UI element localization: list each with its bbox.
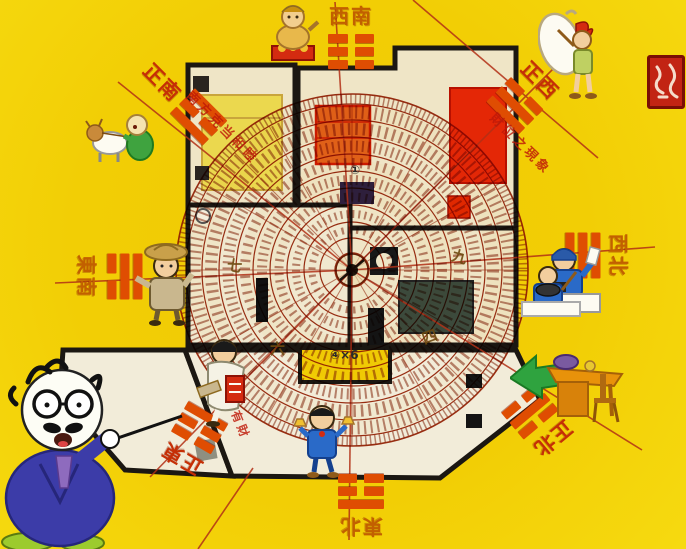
ingot-boy-leg-right xyxy=(328,458,332,472)
direction-text-northeast: 東北 xyxy=(339,514,383,543)
character-sack-carrier xyxy=(538,6,606,104)
direction-label-southwest: 西南 xyxy=(328,0,374,69)
farmer-eye-left xyxy=(161,265,164,268)
carrier-leg-right xyxy=(588,74,590,92)
ingot-boy-arm-right xyxy=(336,426,346,436)
direction-text-southwest: 西南 xyxy=(329,0,373,29)
wealth-god-eye-left xyxy=(288,16,291,19)
ingot-boy-scarf xyxy=(319,431,325,437)
farmer-shoe-left xyxy=(149,320,161,326)
feng-shui-poster: 正南 西南 正西 西北 東南 正東 東北 正北 七 九 四 六 ① ④×6 南方… xyxy=(0,0,686,549)
desk-and-chair-with-arrow xyxy=(510,338,634,428)
carrier-leg-left xyxy=(576,74,578,92)
character-boy-with-gold-ingots xyxy=(294,402,356,480)
clerk-cap xyxy=(552,249,576,260)
scholar-leg xyxy=(214,410,218,422)
gold-ingot-right xyxy=(342,417,354,424)
cooking-pot xyxy=(536,284,560,296)
circled-one-marker: ① xyxy=(350,163,360,177)
tongue xyxy=(58,441,68,447)
character-scholar-with-books xyxy=(182,336,270,428)
compass-numeral-six: 六 xyxy=(270,338,285,359)
farmer-leg-right xyxy=(176,310,178,320)
green-boy-head xyxy=(127,115,147,135)
wealth-god-eye-right xyxy=(296,16,299,19)
direction-label-northeast: 東北 xyxy=(338,474,384,543)
dimension-note: ④×6 xyxy=(330,348,359,362)
farmer-arm-right xyxy=(184,274,192,286)
farmer-shoe-right xyxy=(173,320,185,326)
ingot-boy-arm-left xyxy=(300,428,308,436)
eye-right xyxy=(77,403,82,408)
pot-on-desk xyxy=(554,355,578,369)
character-farmer xyxy=(126,238,198,326)
character-feng-shui-master-professor xyxy=(0,352,190,549)
farmer-leg-left xyxy=(156,310,158,320)
cook-spoon xyxy=(562,272,576,290)
glove-hand xyxy=(101,430,119,448)
trigram-kun-icon xyxy=(328,34,374,69)
green-boy-arm xyxy=(124,136,130,139)
wall-stub-3 xyxy=(466,414,482,428)
sack-tie xyxy=(566,11,576,14)
pointer-stick xyxy=(112,416,182,440)
ingot-boy-leg-left xyxy=(314,458,316,472)
red-books xyxy=(226,376,244,402)
carrier-shoe-left xyxy=(569,93,581,99)
clerk-paper xyxy=(586,247,600,265)
cook-head xyxy=(539,267,557,285)
wealth-god-hat xyxy=(282,6,304,12)
desk-front xyxy=(558,382,588,416)
chair-seat xyxy=(594,398,616,403)
chair-back xyxy=(600,374,606,402)
carrier-shoe-right xyxy=(585,93,597,99)
seal-script-marks xyxy=(653,61,679,103)
character-wealth-god xyxy=(262,2,324,64)
farmer-body xyxy=(150,278,184,310)
green-boy-mouth xyxy=(133,125,137,129)
goat-head xyxy=(87,125,103,141)
carrier-vest xyxy=(574,50,592,74)
carrier-head xyxy=(573,31,591,49)
direction-text-southeast: 東南 xyxy=(74,255,103,299)
farmer-arm-left xyxy=(136,278,150,286)
yellow-bowl xyxy=(585,361,595,371)
ingot-boy-shoe-left xyxy=(307,472,319,478)
scholar-shoe xyxy=(206,421,220,427)
character-cook-at-stove xyxy=(516,264,594,318)
ingot-boy-shoe-right xyxy=(327,472,339,478)
chair-leg-left xyxy=(594,403,596,422)
gold-ingot-left xyxy=(294,419,306,426)
wealth-god-arm xyxy=(309,22,318,30)
kitchen-counter xyxy=(522,302,580,316)
red-seal-stamp xyxy=(647,55,685,109)
character-goat-and-green-boy xyxy=(82,103,160,165)
eye-left xyxy=(45,403,50,408)
farmer-eye-right xyxy=(170,265,173,268)
stray-line-bottom-left xyxy=(198,468,253,549)
chair-leg-right xyxy=(614,403,618,422)
